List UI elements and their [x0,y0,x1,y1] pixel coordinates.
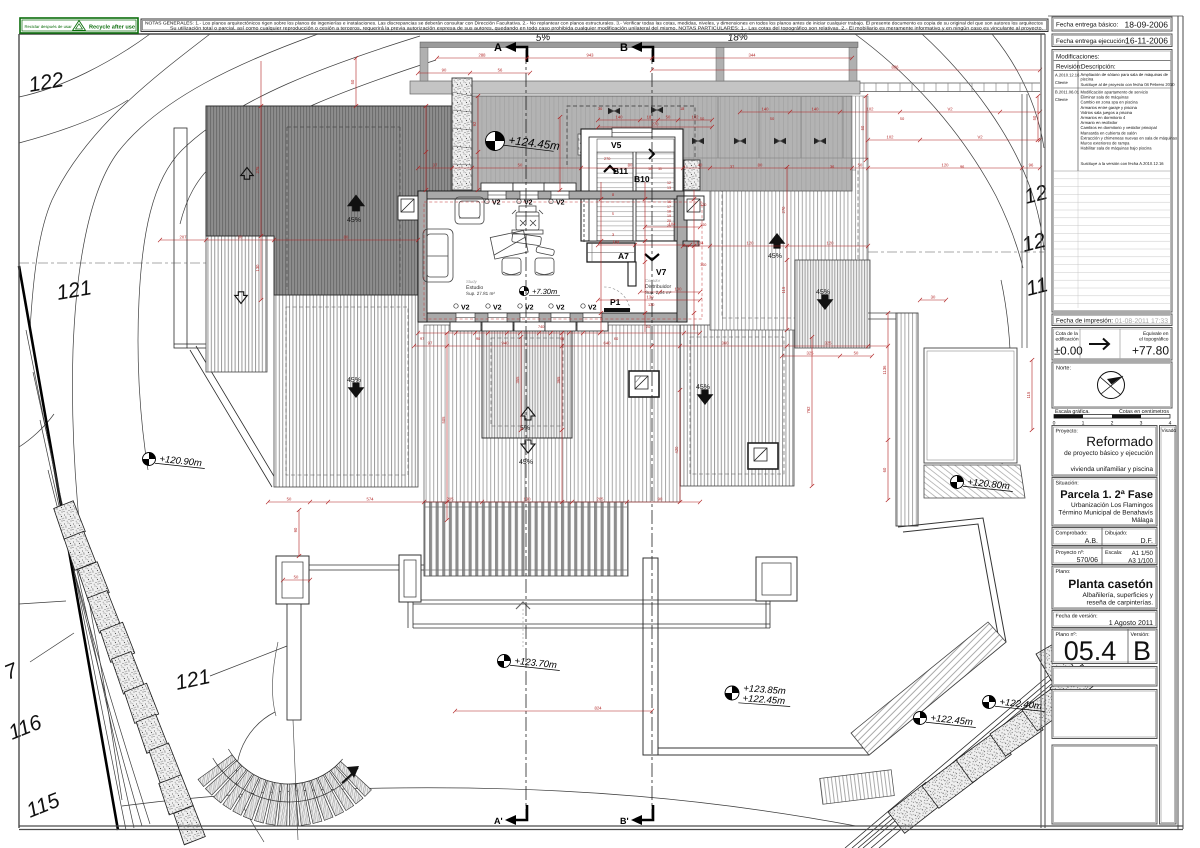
svg-text:Cliente: Cliente [1055,80,1068,85]
svg-text:325: 325 [807,350,815,355]
svg-text:50: 50 [770,117,774,121]
svg-text:365: 365 [556,376,561,384]
svg-text:50: 50 [700,117,704,121]
svg-text:Fecha entrega básico:: Fecha entrega básico: [1056,22,1119,29]
svg-text:A.B.: A.B. [1085,538,1098,545]
svg-text:288: 288 [479,52,487,57]
svg-text:16-11-2006: 16-11-2006 [1125,36,1168,46]
svg-text:30: 30 [931,294,936,299]
svg-text:36: 36 [830,165,834,169]
svg-text:104: 104 [697,240,705,245]
svg-text:05.4: 05.4 [1064,636,1117,666]
svg-text:740: 740 [538,325,544,329]
svg-text:Escala:: Escala: [1105,550,1122,556]
svg-text:Urbanización Los Flamingos: Urbanización Los Flamingos [1071,502,1154,509]
svg-text:01-08-2011 17:33: 01-08-2011 17:33 [1115,318,1168,325]
svg-text:140: 140 [762,106,770,111]
svg-text:45%: 45% [768,253,782,260]
svg-text:Reformado: Reformado [1086,434,1153,449]
svg-text:Situación:: Situación: [1056,481,1079,487]
svg-text:Reciclar después de usar: Reciclar después de usar [25,24,73,29]
svg-text:V5: V5 [611,140,622,150]
svg-text:18: 18 [647,114,652,119]
svg-text:90: 90 [293,527,298,532]
svg-text:102: 102 [867,106,875,111]
svg-text:vivienda unifamiliar y piscina: vivienda unifamiliar y piscina [1071,466,1154,473]
svg-text:60: 60 [614,337,618,341]
svg-text:270: 270 [652,121,660,126]
svg-text:205: 205 [447,496,455,501]
svg-text:V2: V2 [524,200,533,207]
svg-text:5%: 5% [520,425,530,432]
svg-text:30: 30 [598,107,602,111]
svg-text:130: 130 [524,496,532,501]
svg-text:37: 37 [730,165,734,169]
svg-text:V2: V2 [977,134,983,139]
svg-text:100: 100 [675,286,683,291]
svg-text:Revisión:: Revisión: [1056,64,1082,71]
svg-text:+7.30m: +7.30m [532,287,557,296]
svg-text:140: 140 [812,106,820,111]
svg-text:50: 50 [350,79,355,84]
svg-text:piscina: piscina [1081,77,1094,82]
svg-text:275: 275 [255,166,260,174]
svg-text:1 Agosto 2011: 1 Agosto 2011 [1109,620,1153,627]
svg-text:50: 50 [900,117,904,121]
svg-text:130: 130 [647,294,655,299]
svg-text:325: 325 [825,340,833,345]
svg-text:97: 97 [428,340,433,345]
svg-text:360: 360 [722,340,730,345]
svg-text:V2: V2 [556,305,565,312]
svg-text:Parcela 1. 2ª Fase: Parcela 1. 2ª Fase [1060,489,1153,501]
svg-text:edificación: edificación [1056,337,1079,343]
svg-text:207: 207 [180,234,188,239]
svg-text:130: 130 [648,303,654,307]
svg-text:A7: A7 [618,251,629,261]
svg-text:97: 97 [420,337,424,341]
svg-text:90: 90 [658,496,663,501]
svg-text:640: 640 [604,340,612,345]
svg-text:B.2011.06.01: B.2011.06.01 [1055,90,1080,95]
svg-text:574: 574 [367,496,375,501]
svg-text:A': A' [494,816,503,826]
svg-text:Cotas en centimetros: Cotas en centimetros [1119,409,1169,415]
svg-text:Sustituye a la versión con fec: Sustituye a la versión con fecha A.2010.… [1081,161,1165,166]
svg-text:18: 18 [680,107,684,111]
svg-text:D.F.: D.F. [1141,538,1154,545]
svg-text:Sup. 27.81 m²: Sup. 27.81 m² [466,291,495,296]
svg-text:1136: 1136 [882,365,887,375]
svg-text:Proyecto nº:: Proyecto nº: [1056,550,1085,556]
svg-text:Norte:: Norte: [1056,366,1071,372]
svg-text:20: 20 [646,325,650,329]
svg-text:Ampliación de sótano para sala: Ampliación de sótano para sala de máquin… [1081,72,1169,77]
svg-text:270: 270 [604,157,610,161]
svg-text:570/06: 570/06 [1077,556,1099,564]
svg-text:50: 50 [854,350,859,355]
svg-text:90: 90 [560,337,564,341]
svg-text:130: 130 [255,264,260,272]
svg-text:de proyecto básico y ejecución: de proyecto básico y ejecución [1064,450,1153,457]
svg-text:40: 40 [698,162,703,167]
svg-text:Cliente: Cliente [1055,97,1068,102]
svg-text:A1 1/50: A1 1/50 [1132,550,1154,557]
svg-text:Dibujado:: Dibujado: [1105,531,1127,537]
svg-text:Proyecto:: Proyecto: [1056,429,1078,435]
svg-text:45%: 45% [347,217,361,224]
svg-text:17: 17 [667,205,671,209]
svg-text:Study: Study [466,279,478,284]
svg-text:V2: V2 [493,305,502,312]
svg-text:V2: V2 [556,200,565,207]
svg-text:100: 100 [700,263,706,267]
svg-text:A.2010.12.16: A.2010.12.16 [1055,73,1080,78]
svg-text:B: B [620,42,628,54]
svg-text:Equivale en: Equivale en [1143,331,1169,337]
svg-text:B: B [1133,636,1151,666]
svg-text:90: 90 [476,337,480,341]
svg-text:344: 344 [749,52,757,57]
svg-text:Fecha entrega ejecución:: Fecha entrega ejecución: [1056,38,1127,45]
svg-text:Comprobado:: Comprobado: [1056,531,1088,537]
svg-text:el topográfico: el topográfico [1139,337,1169,343]
svg-text:3: 3 [612,233,614,237]
svg-text:Su utilización total o parcial: Su utilización total o parcial, así como… [170,26,1043,31]
svg-text:120: 120 [942,162,950,167]
svg-text:V2: V2 [461,305,470,312]
svg-text:Fecha de impresión:: Fecha de impresión: [1056,318,1113,325]
svg-text:50: 50 [287,496,292,501]
svg-text:Albañilería, superficies y: Albañilería, superficies y [1083,592,1154,599]
svg-text:164: 164 [613,239,621,244]
svg-text:80: 80 [344,234,349,239]
svg-text:Sustituye al de proyecto con f: Sustituye al de proyecto con fecha 08 Fe… [1081,82,1176,87]
svg-text:115: 115 [781,286,786,293]
svg-text:V2: V2 [492,200,501,207]
svg-text:13: 13 [667,186,671,190]
svg-text:90: 90 [442,67,447,72]
svg-text:B10: B10 [634,174,650,184]
svg-text:205: 205 [597,496,605,501]
svg-text:5: 5 [612,212,614,216]
svg-text:V7: V7 [656,267,667,277]
svg-text:Escala gráfica.: Escala gráfica. [1055,409,1090,415]
svg-text:±0.00: ±0.00 [1054,346,1083,358]
svg-text:50: 50 [860,125,865,130]
svg-text:10: 10 [648,167,652,171]
svg-text:reseña de carpinterías.: reseña de carpinterías. [1087,600,1154,607]
svg-text:Término Municipal de Benahavís: Término Municipal de Benahavís [1058,510,1153,517]
svg-text:102: 102 [692,114,700,119]
svg-text:37: 37 [433,162,438,167]
svg-text:30: 30 [238,234,243,239]
svg-text:96: 96 [1029,162,1034,167]
svg-text:Planta casetón: Planta casetón [1068,577,1153,591]
svg-text:56: 56 [498,67,503,72]
svg-text:505: 505 [441,416,446,424]
svg-text:943: 943 [587,52,595,57]
svg-text:140: 140 [616,114,624,119]
svg-text:420: 420 [674,446,679,454]
svg-text:Plano:: Plano: [1056,569,1071,575]
svg-text:18-09-2006: 18-09-2006 [1125,20,1169,30]
svg-text:19: 19 [667,214,671,218]
svg-text:96: 96 [960,165,964,169]
svg-text:18: 18 [667,210,671,214]
svg-text:104: 104 [669,221,677,226]
svg-text:940: 940 [502,340,510,345]
svg-text:60: 60 [882,467,887,472]
svg-text:80: 80 [758,162,763,167]
svg-text:Modificaciones:: Modificaciones: [1056,54,1100,61]
svg-text:P1: P1 [610,297,621,307]
svg-text:80: 80 [628,162,633,167]
svg-text:824: 824 [595,705,603,710]
svg-text:120: 120 [747,240,755,245]
svg-text:115: 115 [1026,391,1031,398]
svg-text:120: 120 [827,240,835,245]
svg-text:Visado: Visado [1162,428,1177,434]
svg-text:V2: V2 [947,106,953,111]
svg-text:A: A [494,42,502,54]
svg-text:Fecha de versión:: Fecha de versión: [1056,614,1098,620]
svg-text:+77.80: +77.80 [1132,344,1169,358]
svg-text:V2: V2 [588,305,597,312]
svg-text:Corridor: Corridor [645,278,661,283]
svg-text:8: 8 [612,193,614,197]
svg-text:Cota de la: Cota de la [1056,331,1079,337]
svg-text:A3 1/100: A3 1/100 [1128,558,1153,565]
svg-text:355: 355 [515,376,520,384]
svg-text:Recycle after use: Recycle after use [89,23,135,30]
svg-text:B': B' [620,816,629,826]
svg-text:Málaga: Málaga [1132,517,1154,524]
svg-text:Habilitar sala de máquinas baj: Habilitar sala de máquinas bajo piscina [1081,146,1153,151]
svg-text:102: 102 [887,134,895,139]
svg-text:92: 92 [472,121,477,126]
svg-text:50: 50 [666,114,671,119]
svg-text:50: 50 [518,162,523,167]
svg-text:792: 792 [806,406,811,414]
svg-text:11: 11 [658,167,662,171]
svg-text:886: 886 [892,64,900,69]
svg-text:270: 270 [781,206,786,214]
svg-text:50: 50 [294,574,299,579]
svg-text:Descripción:: Descripción: [1081,64,1116,71]
svg-text:50: 50 [858,162,863,167]
svg-text:50: 50 [1032,115,1037,120]
svg-text:12: 12 [667,181,671,185]
svg-text:100: 100 [700,223,706,227]
svg-text:120: 120 [700,203,706,207]
